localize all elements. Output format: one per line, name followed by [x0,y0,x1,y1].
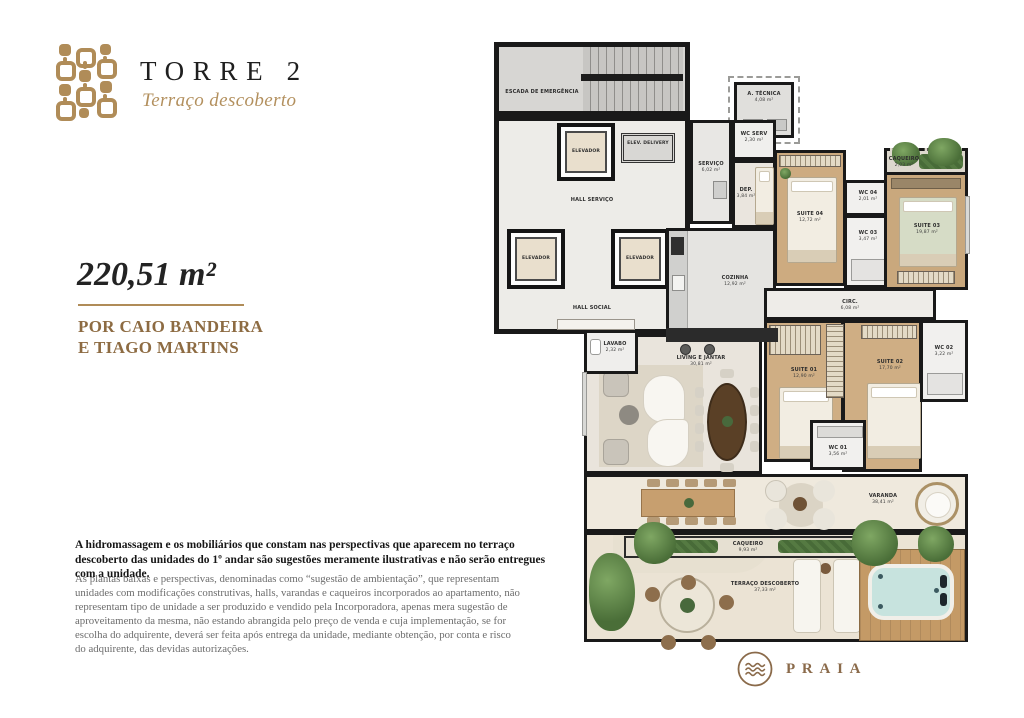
room-balcony: VARANDA 38,41 m² [584,474,968,532]
sun-lounger [793,559,821,633]
room-label: ELEVADOR [522,256,550,261]
pouf [619,405,639,425]
praia-brand: PRAIA [736,650,867,688]
author-line-2: E TIAGO MARTINS [78,337,263,358]
room-area: 2,30 m² [736,138,772,144]
elevator-delivery: ELEV. DELIVERY [621,133,675,163]
elevator-right: ELEVADOR [611,229,669,289]
room-area: 38,41 m² [841,500,925,506]
room-area: 9,93 m² [718,548,778,554]
bed [867,383,921,459]
room-label: COZINHA [722,275,749,281]
lounge-chairs [765,480,787,502]
room-label: WC 03 [859,230,878,236]
dining-chair [720,369,734,378]
room-label: A. TÉCNICA [747,91,780,97]
room-label: CIRC. [842,299,858,305]
room-kitchen: COZINHA 12,92 m² [666,228,776,332]
kitchen-sink [672,275,685,291]
room-area: 2,01 m² [850,197,886,203]
room-wc-service: WC SERV 2,30 m² [732,120,776,160]
room-wc-01: WC 01 3,56 m² [810,420,866,470]
floor-plan: ESCADA DE EMERGÊNCIA A. TÉCNICA 4,08 m² … [488,36,980,646]
elevator-top: ELEVADOR [557,123,615,181]
plant [918,526,954,562]
room-area: 12,72 m² [780,218,840,224]
wardrobe [861,325,917,339]
room-area: 37,33 m² [721,588,809,594]
room-label: HALL SOCIAL [573,305,611,311]
centerpiece-plant [684,498,694,508]
dining-chairs [695,387,704,398]
room-area: 3,56 m² [819,452,857,458]
room-area: 4,08 m² [739,98,789,104]
hedge [778,540,860,553]
sofa [643,375,685,423]
dining-chairs [750,387,759,398]
room-area: 17,70 m² [863,366,917,372]
page-subtitle: Terraço descoberto [142,90,296,112]
room-label: SUITE 02 [877,359,903,365]
room-label: ELEVADOR [626,256,654,261]
room-area: 6,08 m² [815,306,885,312]
room-emergency-stairs: ESCADA DE EMERGÊNCIA [494,42,690,116]
centerpiece-plant [722,416,733,427]
elevator-left: ELEVADOR [507,229,565,289]
outdoor-chairs [647,479,660,487]
room-label: SUITE 01 [791,367,817,373]
shower [927,373,963,395]
plant [780,168,791,179]
room-area: 19,87 m² [899,230,955,236]
unit-area: 220,51 m² [77,256,216,294]
room-label: WC SERV [741,131,768,137]
brochure-page: TORRE 2 Terraço descoberto 220,51 m² POR… [0,0,1024,718]
room-label: WC 02 [935,345,954,351]
disclaimer-body: As plantas baixas e perspectivas, denomi… [75,572,523,656]
room-area: 3,47 m² [850,237,886,243]
room-service: SERVIÇO 6,02 m² [690,120,732,224]
room-area: 12,90 m² [775,374,833,380]
plant [634,522,676,564]
sun-lounger [833,559,861,633]
side-table [793,497,807,511]
window [582,372,587,436]
side-table [820,563,831,574]
kitchen-island [666,328,778,342]
room-area: 30,81 m² [641,362,761,368]
page-title: TORRE 2 [140,56,309,87]
tub-headrest [940,575,947,588]
stove [671,237,684,255]
round-table [659,577,715,633]
chair-cushion [925,492,951,518]
plant [852,520,898,566]
room-label: VARANDA [869,493,897,499]
room-area: 3,84 m² [735,194,757,200]
room-suite-04: SUITE 04 12,72 m² [774,150,846,286]
room-area: 12,92 m² [703,282,767,288]
room-label: CAQUEIRO [889,156,919,162]
centerpiece-plant [680,598,695,613]
wardrobe [826,324,844,398]
shower [851,259,887,281]
armchair [603,439,629,465]
room-label: ELEVADOR [572,149,600,154]
laundry-sink [713,181,727,199]
author-line-1: POR CAIO BANDEIRA [78,316,263,337]
room-label: ESCADA DE EMERGÊNCIA [505,89,578,95]
wardrobe [779,155,841,167]
dining-chair [720,463,734,472]
plant [589,553,635,631]
room-lavabo: LAVABO 2,32 m² [584,330,638,374]
room-label: LAVABO [603,341,626,347]
room-label: SERVIÇO [698,161,724,167]
room-area: 2,32 m² [599,348,631,354]
room-label: WC 04 [859,190,878,196]
room-label: SUITE 03 [914,223,940,229]
room-label: CAQUEIRO [733,541,763,547]
stair-landing [581,74,683,81]
room-area: 2,03 m² [888,163,920,169]
room-label: WC 01 [829,445,848,451]
waves-icon [736,650,774,688]
room-area: 3,22 m² [927,352,961,358]
room-label: LIVING E JANTAR [677,355,726,361]
armchair [603,371,629,397]
room-wc-02: WC 02 3,22 m² [920,320,968,402]
brand-name: PRAIA [786,661,867,678]
stool [680,344,691,355]
room-label: TERRAÇO DESCOBERTO [731,581,799,587]
gold-divider [78,304,244,306]
unit-authors: POR CAIO BANDEIRA E TIAGO MARTINS [78,316,263,359]
room-suite-03: SUITE 03 19,87 m² [884,172,968,290]
wardrobe [897,271,955,284]
room-maid: DEP. 3,84 m² [732,160,776,228]
room-label: HALL SERVIÇO [571,197,613,203]
outdoor-table [641,489,735,517]
console-table [557,319,635,330]
stool [704,344,715,355]
hot-tub [868,564,954,620]
dining-table [707,383,747,461]
tub-jets [878,574,883,579]
window [965,196,970,254]
vanity [817,426,863,438]
room-circulation: CIRC. 6,08 m² [764,288,936,320]
room-label: DEP. [740,187,753,193]
room-label: SUITE 04 [797,211,823,217]
tower-mosaic-logo-icon [56,44,118,120]
room-hall: ELEVADOR ELEV. DELIVERY HALL SERVIÇO ELE… [494,116,690,334]
bed [755,167,774,225]
terrace-chairs [645,587,660,602]
room-label: ELEV. DELIVERY [627,141,669,146]
plant [928,138,962,166]
room-area: 6,02 m² [694,168,728,174]
sofa [647,419,689,467]
shelf [891,178,961,189]
